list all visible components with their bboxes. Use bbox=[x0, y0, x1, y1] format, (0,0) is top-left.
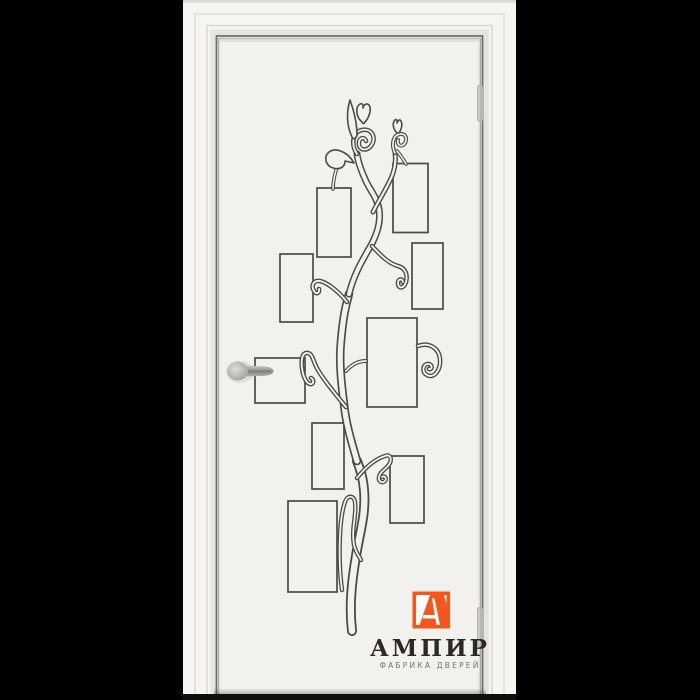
door-hinge-top bbox=[477, 85, 483, 122]
photo-frame bbox=[317, 188, 351, 257]
brand-logo-icon bbox=[413, 592, 451, 629]
door-product-image bbox=[0, 0, 700, 700]
photo-frame bbox=[288, 501, 337, 592]
photo-frame bbox=[312, 423, 344, 489]
floor-line bbox=[183, 694, 516, 700]
photo-frame bbox=[280, 254, 313, 322]
photo-frame bbox=[393, 164, 428, 233]
photo-frame bbox=[367, 318, 417, 407]
photo-frame bbox=[412, 243, 443, 309]
leaf-bud-small bbox=[393, 120, 402, 133]
photo-frame bbox=[390, 456, 424, 523]
photo-frame bbox=[255, 358, 305, 403]
brand-name: АМПИР bbox=[366, 635, 494, 662]
casing-top-edge bbox=[183, 0, 516, 3]
brand-tagline: ФАБРИКА ДВЕРЕЙ bbox=[366, 661, 494, 670]
